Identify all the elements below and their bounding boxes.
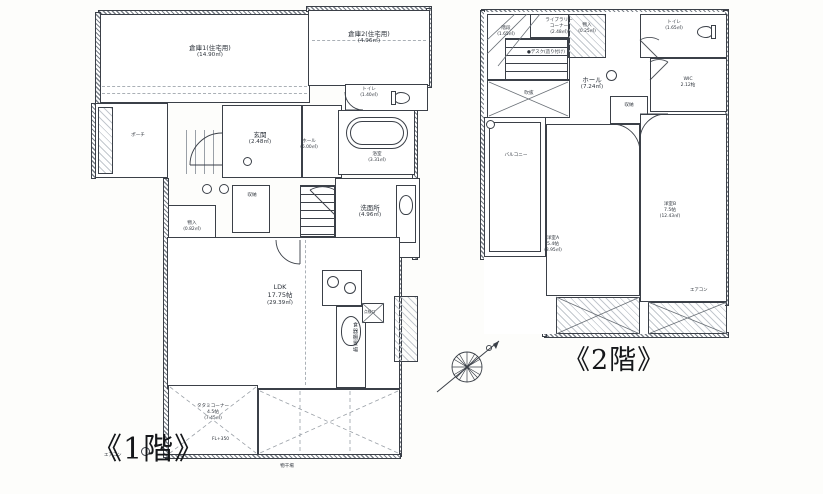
room-label-hall1: ホール (6.00㎡): [287, 139, 331, 151]
room-label-shuno2: 収納: [612, 103, 646, 109]
porch-hatch: [98, 107, 113, 174]
room-area: (12.43㎡): [646, 214, 694, 220]
room-label-monoire2: 物入 (0.25㎡): [570, 23, 604, 35]
guide-line: [305, 240, 306, 385]
room-yoshitsuA: [546, 124, 640, 296]
drying-area-label: 物干場: [262, 464, 312, 470]
room-area: (2.48㎡): [230, 139, 290, 146]
room-label-souko1: 倉庫1(住宅用) (14.90㎡): [150, 44, 270, 60]
room-area: (1.65㎡): [652, 26, 696, 32]
entry-steps: [186, 130, 222, 174]
room-label-genkan: 玄関 (2.48㎡): [230, 131, 290, 147]
room-label-toilet2: トイレ (1.65㎡): [652, 20, 696, 32]
floorplan-page: { "colors": { "line": "#3b4048", "paper"…: [0, 0, 823, 494]
room-name: 収納: [236, 193, 268, 199]
room-label-bath: 浴室 (3.31㎡): [352, 152, 402, 164]
room-label-wic: WIC 2.12帖: [666, 77, 710, 89]
room-label-monoire1: 物入 (0.82㎡): [170, 221, 214, 233]
room-area: (29.39㎡): [245, 300, 315, 307]
room-label-tatami: タタミコーナー 4.5帖 (7.45㎡): [172, 404, 254, 422]
room-area: (7.45㎡): [172, 416, 254, 422]
aircon-label: エアコン: [690, 287, 708, 293]
room-area: (0.82㎡): [170, 227, 214, 233]
room-label-shuno1: 収納: [236, 193, 268, 199]
room-souko2: [308, 10, 430, 86]
room-name: ポーチ: [118, 133, 158, 139]
room-area: (6.00㎡): [287, 145, 331, 151]
room-name: 吹抜: [512, 91, 546, 97]
balcony-railing: [489, 122, 541, 252]
fixture-symbol: [486, 120, 495, 129]
room-label-porch: ポーチ: [118, 133, 158, 139]
room-area: (14.90㎡): [150, 52, 270, 59]
room-size: 2.12帖: [666, 83, 710, 89]
fixture-symbol: [219, 184, 229, 194]
void-label: 吹抜: [512, 91, 546, 97]
fixture-symbol: [202, 184, 212, 194]
bathtub-icon: [346, 117, 408, 149]
room-label-yoshitsuB: 洋室B 7.5帖 (12.43㎡): [646, 202, 694, 220]
room-area: (4.96㎡): [310, 38, 428, 45]
guide-line: [102, 86, 307, 87]
room-label-ldk: LDK 17.75帖 (29.39㎡): [245, 283, 315, 307]
stairs-icon: [505, 38, 568, 80]
guide-line: [102, 93, 307, 94]
deck-area: [258, 389, 400, 455]
room-area: (1.40㎡): [348, 93, 390, 99]
room-size: 17.75帖: [245, 291, 315, 299]
floor2-title: 《2階》: [563, 338, 665, 377]
cupboard-space: [394, 296, 418, 362]
room-label-yoshitsuA: 洋室A 5.4帖 (8.95㎡): [530, 236, 576, 254]
room-label-kaidan: 階段 (1.65㎡): [487, 26, 525, 38]
toilet-icon: [391, 92, 410, 105]
room-label-souko2: 倉庫2(住宅用) (4.96㎡): [310, 30, 428, 46]
room-name: 収納: [612, 103, 646, 109]
stairs-icon: [300, 185, 335, 237]
hatch-label: 点検口: [364, 309, 375, 314]
room-name: バルコニー: [494, 153, 538, 159]
toilet-icon: [697, 25, 716, 38]
stove-icon: [327, 276, 339, 288]
floor1-title: 《1階》: [92, 424, 205, 468]
floor-level-note: FL+350: [212, 437, 229, 442]
fixture-symbol: [243, 157, 252, 166]
balcony-label: バルコニー: [494, 153, 538, 159]
compass-icon: [437, 341, 499, 392]
room-label-senmen: 洗面所 (4.96㎡): [340, 204, 400, 220]
stove-icon: [344, 282, 356, 294]
sink-icon: [399, 195, 413, 215]
room-area: (1.65㎡): [487, 32, 525, 38]
room-area: (3.31㎡): [352, 158, 402, 164]
room-area: (7.24㎡): [568, 84, 616, 91]
room-area: (0.25㎡): [570, 29, 604, 35]
cupboard-label: 食器棚置場: [352, 322, 359, 366]
room-label-hall2: ホール (7.24㎡): [568, 76, 616, 92]
room-label-toilet1: トイレ (1.40㎡): [348, 87, 390, 99]
room-area: (8.95㎡): [530, 248, 576, 254]
void-area: [487, 80, 570, 118]
library-note: ●デスク(造り付け): [527, 49, 565, 55]
closet-B: [648, 302, 727, 334]
room-name: 物干場: [262, 464, 312, 470]
closet-A: [556, 297, 640, 334]
stove-counter: [322, 270, 362, 306]
room-area: (4.96㎡): [340, 212, 400, 219]
